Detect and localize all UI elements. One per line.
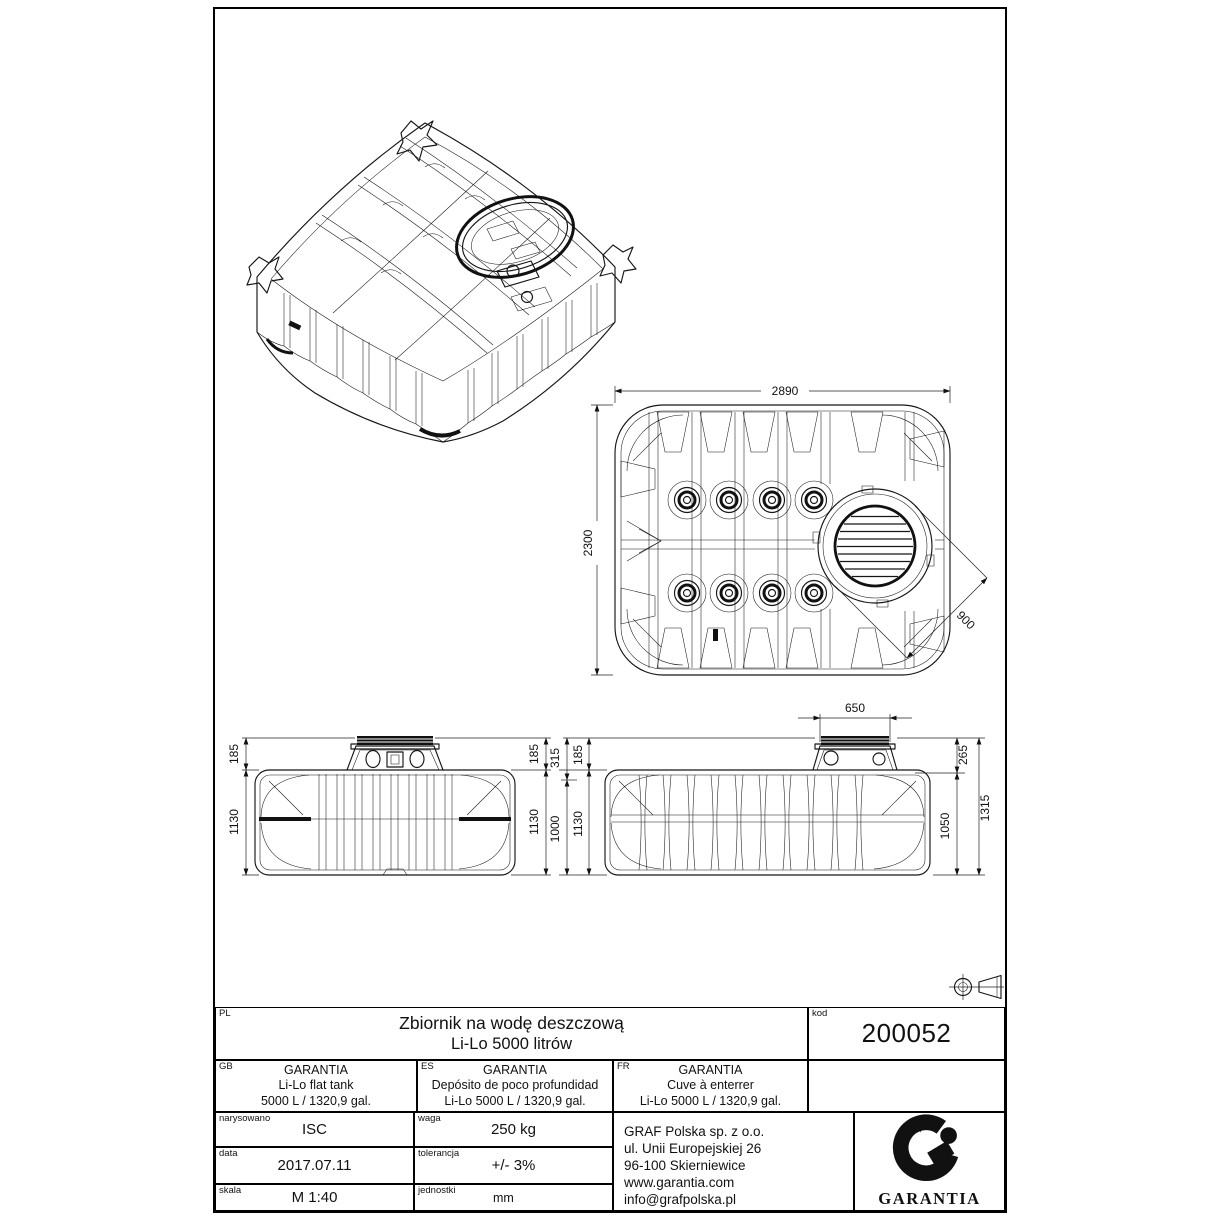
drawing-subtitle: Li-Lo 5000 litrów (451, 1034, 572, 1055)
end-dimensions: 185 1130 185 1130 (227, 738, 551, 875)
mold-mark (713, 629, 718, 641)
lang-label-es: ES (421, 1062, 434, 1072)
field-label: narysowano (219, 1114, 270, 1124)
code-label: kod (812, 1009, 827, 1019)
dim-label: 1130 (527, 809, 541, 835)
lang-label-pl: PL (219, 1009, 231, 1019)
manhole-iso (447, 183, 584, 311)
title-cell-pl: PL Zbiornik na wodę deszczową Li-Lo 5000… (215, 1007, 808, 1060)
corner-cap (247, 257, 283, 293)
technical-drawing: 2890 2300 900 (215, 9, 1005, 1007)
title-cell-gb: GB GARANTIA Li-Lo flat tank 5000 L / 132… (215, 1060, 417, 1112)
field-label: waga (418, 1114, 441, 1124)
tank-cover (357, 736, 433, 745)
dim-label: 185 (571, 745, 585, 765)
top-bosses (668, 481, 833, 612)
field-value: +/- 3% (492, 1157, 536, 1174)
lang-label-gb: GB (219, 1062, 233, 1072)
dim-label: 1130 (227, 809, 241, 835)
end-ribs (319, 774, 452, 870)
brand-name: GARANTIA (679, 1063, 743, 1079)
dim-label: 1130 (571, 811, 585, 837)
logo-wordmark: GARANTIA (878, 1189, 980, 1208)
iso-right-ribs (468, 283, 597, 423)
brand-name: GARANTIA (284, 1063, 348, 1079)
capacity-es: Li-Lo 5000 L / 1320,9 gal. (444, 1094, 585, 1110)
manhole-top (813, 486, 934, 607)
field-jednostki: jednostki mm (414, 1184, 613, 1211)
drawing-sheet: 2890 2300 900 (213, 7, 1007, 1213)
field-label: skala (219, 1186, 241, 1196)
dim-label: 315 (548, 748, 562, 768)
dim-label: 1315 (978, 794, 992, 821)
corner-cap (397, 121, 437, 161)
field-label: tolerancja (418, 1149, 459, 1159)
product-name-gb: Li-Lo flat tank (278, 1078, 353, 1094)
company-name: GRAF Polska sp. z o.o. (624, 1123, 764, 1140)
field-value: M 1:40 (292, 1189, 338, 1206)
company-address: GRAF Polska sp. z o.o. ul. Unii Europejs… (613, 1112, 854, 1211)
side-dimensions: 650 315 1000 185 1130 265 1050 1315 (548, 701, 992, 875)
code-cell: kod 200052 (808, 1007, 1005, 1060)
code-value: 200052 (862, 1018, 952, 1049)
field-narysowano: narysowano ISC (215, 1112, 414, 1147)
brand-logo: GARANTIA (854, 1112, 1005, 1211)
tank-cover (821, 736, 889, 745)
view-end: 185 1130 185 1130 (227, 736, 551, 875)
capacity-fr: Li-Lo 5000 L / 1320,9 gal. (640, 1094, 781, 1110)
dim-label-manhole: 900 (954, 608, 978, 632)
garantia-logo-icon: GARANTIA (854, 1113, 1005, 1210)
field-waga: waga 250 kg (414, 1112, 613, 1147)
product-name-fr: Cuve à enterrer (667, 1078, 754, 1094)
dim-label: 185 (527, 744, 541, 764)
company-street: ul. Unii Europejskiej 26 (624, 1140, 761, 1157)
company-website: www.garantia.com (624, 1174, 734, 1191)
field-data: data 2017.07.11 (215, 1147, 414, 1184)
page: { "sheet": { "views": { "top": { "dim_wi… (0, 0, 1220, 1220)
company-city: 96-100 Skierniewice (624, 1157, 746, 1174)
title-block: PL Zbiornik na wodę deszczową Li-Lo 5000… (215, 1007, 1005, 1211)
view-isometric (247, 121, 636, 442)
dim-label-width: 2890 (772, 384, 799, 398)
side-ribs (639, 775, 863, 870)
dim-label-depth: 2300 (581, 529, 595, 556)
dim-label: 1050 (938, 812, 952, 839)
field-value: ISC (302, 1121, 327, 1138)
corner-cap (600, 245, 636, 283)
title-cell-es: ES GARANTIA Depósito de poco profundidad… (417, 1060, 613, 1112)
field-value: 2017.07.11 (278, 1157, 352, 1174)
drawing-title: Zbiornik na wodę deszczową (399, 1012, 624, 1034)
dim-label-neck: 650 (845, 701, 865, 715)
lang-label-fr: FR (617, 1062, 630, 1072)
dim-label: 1000 (548, 815, 562, 842)
dim-label: 185 (227, 744, 241, 764)
product-name-es: Depósito de poco profundidad (432, 1078, 599, 1094)
field-tolerancja: tolerancja +/- 3% (414, 1147, 613, 1184)
dim-label: 265 (956, 745, 970, 765)
field-label: jednostki (418, 1186, 456, 1196)
projection-symbol-icon (949, 974, 1004, 1000)
iso-left-ribs (284, 293, 422, 426)
capacity-gb: 5000 L / 1320,9 gal. (261, 1094, 371, 1110)
field-skala: skala M 1:40 (215, 1184, 414, 1211)
field-label: data (219, 1149, 238, 1159)
brand-name: GARANTIA (483, 1063, 547, 1079)
view-side: 650 315 1000 185 1130 265 1050 1315 (548, 701, 992, 875)
view-top: 2890 2300 900 (581, 384, 987, 675)
company-email: info@grafpolska.pl (624, 1191, 736, 1208)
title-cell-fr: FR GARANTIA Cuve à enterrer Li-Lo 5000 L… (613, 1060, 808, 1112)
empty-cell (808, 1060, 1005, 1112)
field-value: 250 kg (491, 1121, 536, 1138)
